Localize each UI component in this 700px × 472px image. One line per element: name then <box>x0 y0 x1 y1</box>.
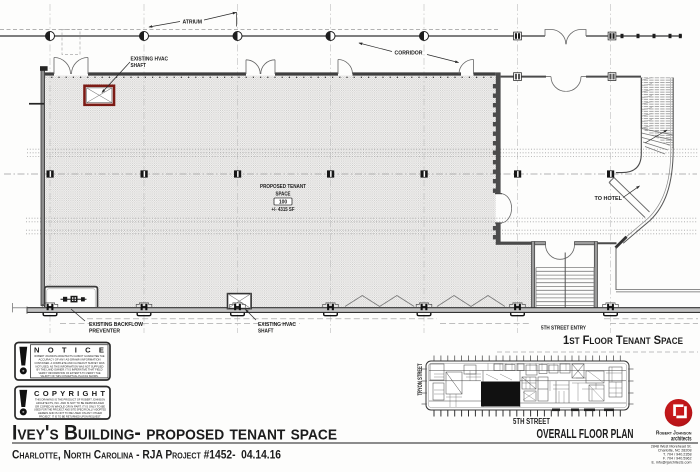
svg-text:HEREIN AND IS NOT TO BE USED O: HEREIN AND IS NOT TO BE USED ON ANY OTHE… <box>38 411 102 415</box>
svg-text:VALIDITY OF THIS CONCEPTUAL PL: VALIDITY OF THIS CONCEPTUAL PLAN AS SHOW… <box>41 374 99 378</box>
svg-text:NOT USED, AS THIS INFORMATION: NOT USED, AS THIS INFORMATION WAS NOT SU… <box>36 364 104 368</box>
svg-text:THIS DRAWING IS THE PRODUCT OF: THIS DRAWING IS THE PRODUCT OF ROBERT JO… <box>35 398 105 402</box>
svg-text:EXISTING HVAC: EXISTING HVAC <box>258 322 296 328</box>
svg-text:ARCHITECTS, INC. AND IS NOT TO: ARCHITECTS, INC. AND IS NOT TO BE REPROD… <box>36 401 104 405</box>
svg-text:ATRIUM: ATRIUM <box>183 19 203 25</box>
svg-text:PREVENTER: PREVENTER <box>89 329 120 335</box>
svg-text:USED FOR THE PROJECT AND SITE: USED FOR THE PROJECT AND SITE SPECIFICAL… <box>34 408 106 412</box>
svg-text:ACCURACY OF ANY AS-DRAWN INFOR: ACCURACY OF ANY AS-DRAWN INFORMATION <box>39 358 101 362</box>
svg-text:PROPOSED TENANT: PROPOSED TENANT <box>260 184 306 190</box>
svg-text:CORRIDOR: CORRIDOR <box>395 50 423 56</box>
svg-text:Ivey's Building- proposed tena: Ivey's Building- proposed tenant space <box>12 421 337 444</box>
svg-text:Robert Johnson: Robert Johnson <box>656 430 692 436</box>
svg-text:EXISTING HVAC: EXISTING HVAC <box>131 57 169 63</box>
svg-text:CONTAINED. A COMPLETE AND CLOS: CONTAINED. A COMPLETE AND CLOSEOUT SURVE… <box>35 361 105 365</box>
svg-text:OR COPIED IN WHOLE OR IN PART.: OR COPIED IN WHOLE OR IN PART. IT IS ONL… <box>35 404 105 408</box>
svg-text:COPYRIGHT: COPYRIGHT <box>34 389 105 398</box>
svg-text:5TH STREET ENTRY: 5TH STREET ENTRY <box>541 326 586 332</box>
svg-text:PROJECT. IT IS TO BE RETURNED: PROJECT. IT IS TO BE RETURNED UPON REQUE… <box>39 415 101 419</box>
svg-text:E. info@rjarchitects.com: E. info@rjarchitects.com <box>651 461 691 465</box>
svg-text:+/- 4315 SF: +/- 4315 SF <box>272 207 295 213</box>
svg-text:Charlotte, North Carolina - RJ: Charlotte, North Carolina - RJA Project … <box>12 448 281 461</box>
svg-text:OVERALL FLOOR PLAN: OVERALL FLOOR PLAN <box>537 426 634 441</box>
svg-text:5TH STREET: 5TH STREET <box>513 417 550 426</box>
svg-text:EXISTING BACKFLOW: EXISTING BACKFLOW <box>89 322 144 328</box>
svg-text:1st Floor Tenant Space: 1st Floor Tenant Space <box>563 333 683 347</box>
svg-text:TO HOTEL: TO HOTEL <box>595 196 623 202</box>
svg-text:BY THE LAND OWNER. IT IS IMPER: BY THE LAND OWNER. IT IS IMPERATIVE THAT… <box>37 368 103 372</box>
svg-text:SHAFT: SHAFT <box>258 329 274 335</box>
svg-text:SHAFT: SHAFT <box>131 63 147 69</box>
svg-text:100: 100 <box>279 200 288 206</box>
svg-text:ROBERT JOHNSON ARCHITECTS CANN: ROBERT JOHNSON ARCHITECTS CANNOT GUARANT… <box>35 354 105 358</box>
svg-text:architects: architects <box>671 437 692 443</box>
svg-text:SPACE: SPACE <box>276 192 291 198</box>
svg-text:TRYON STREET: TRYON STREET <box>417 363 424 395</box>
